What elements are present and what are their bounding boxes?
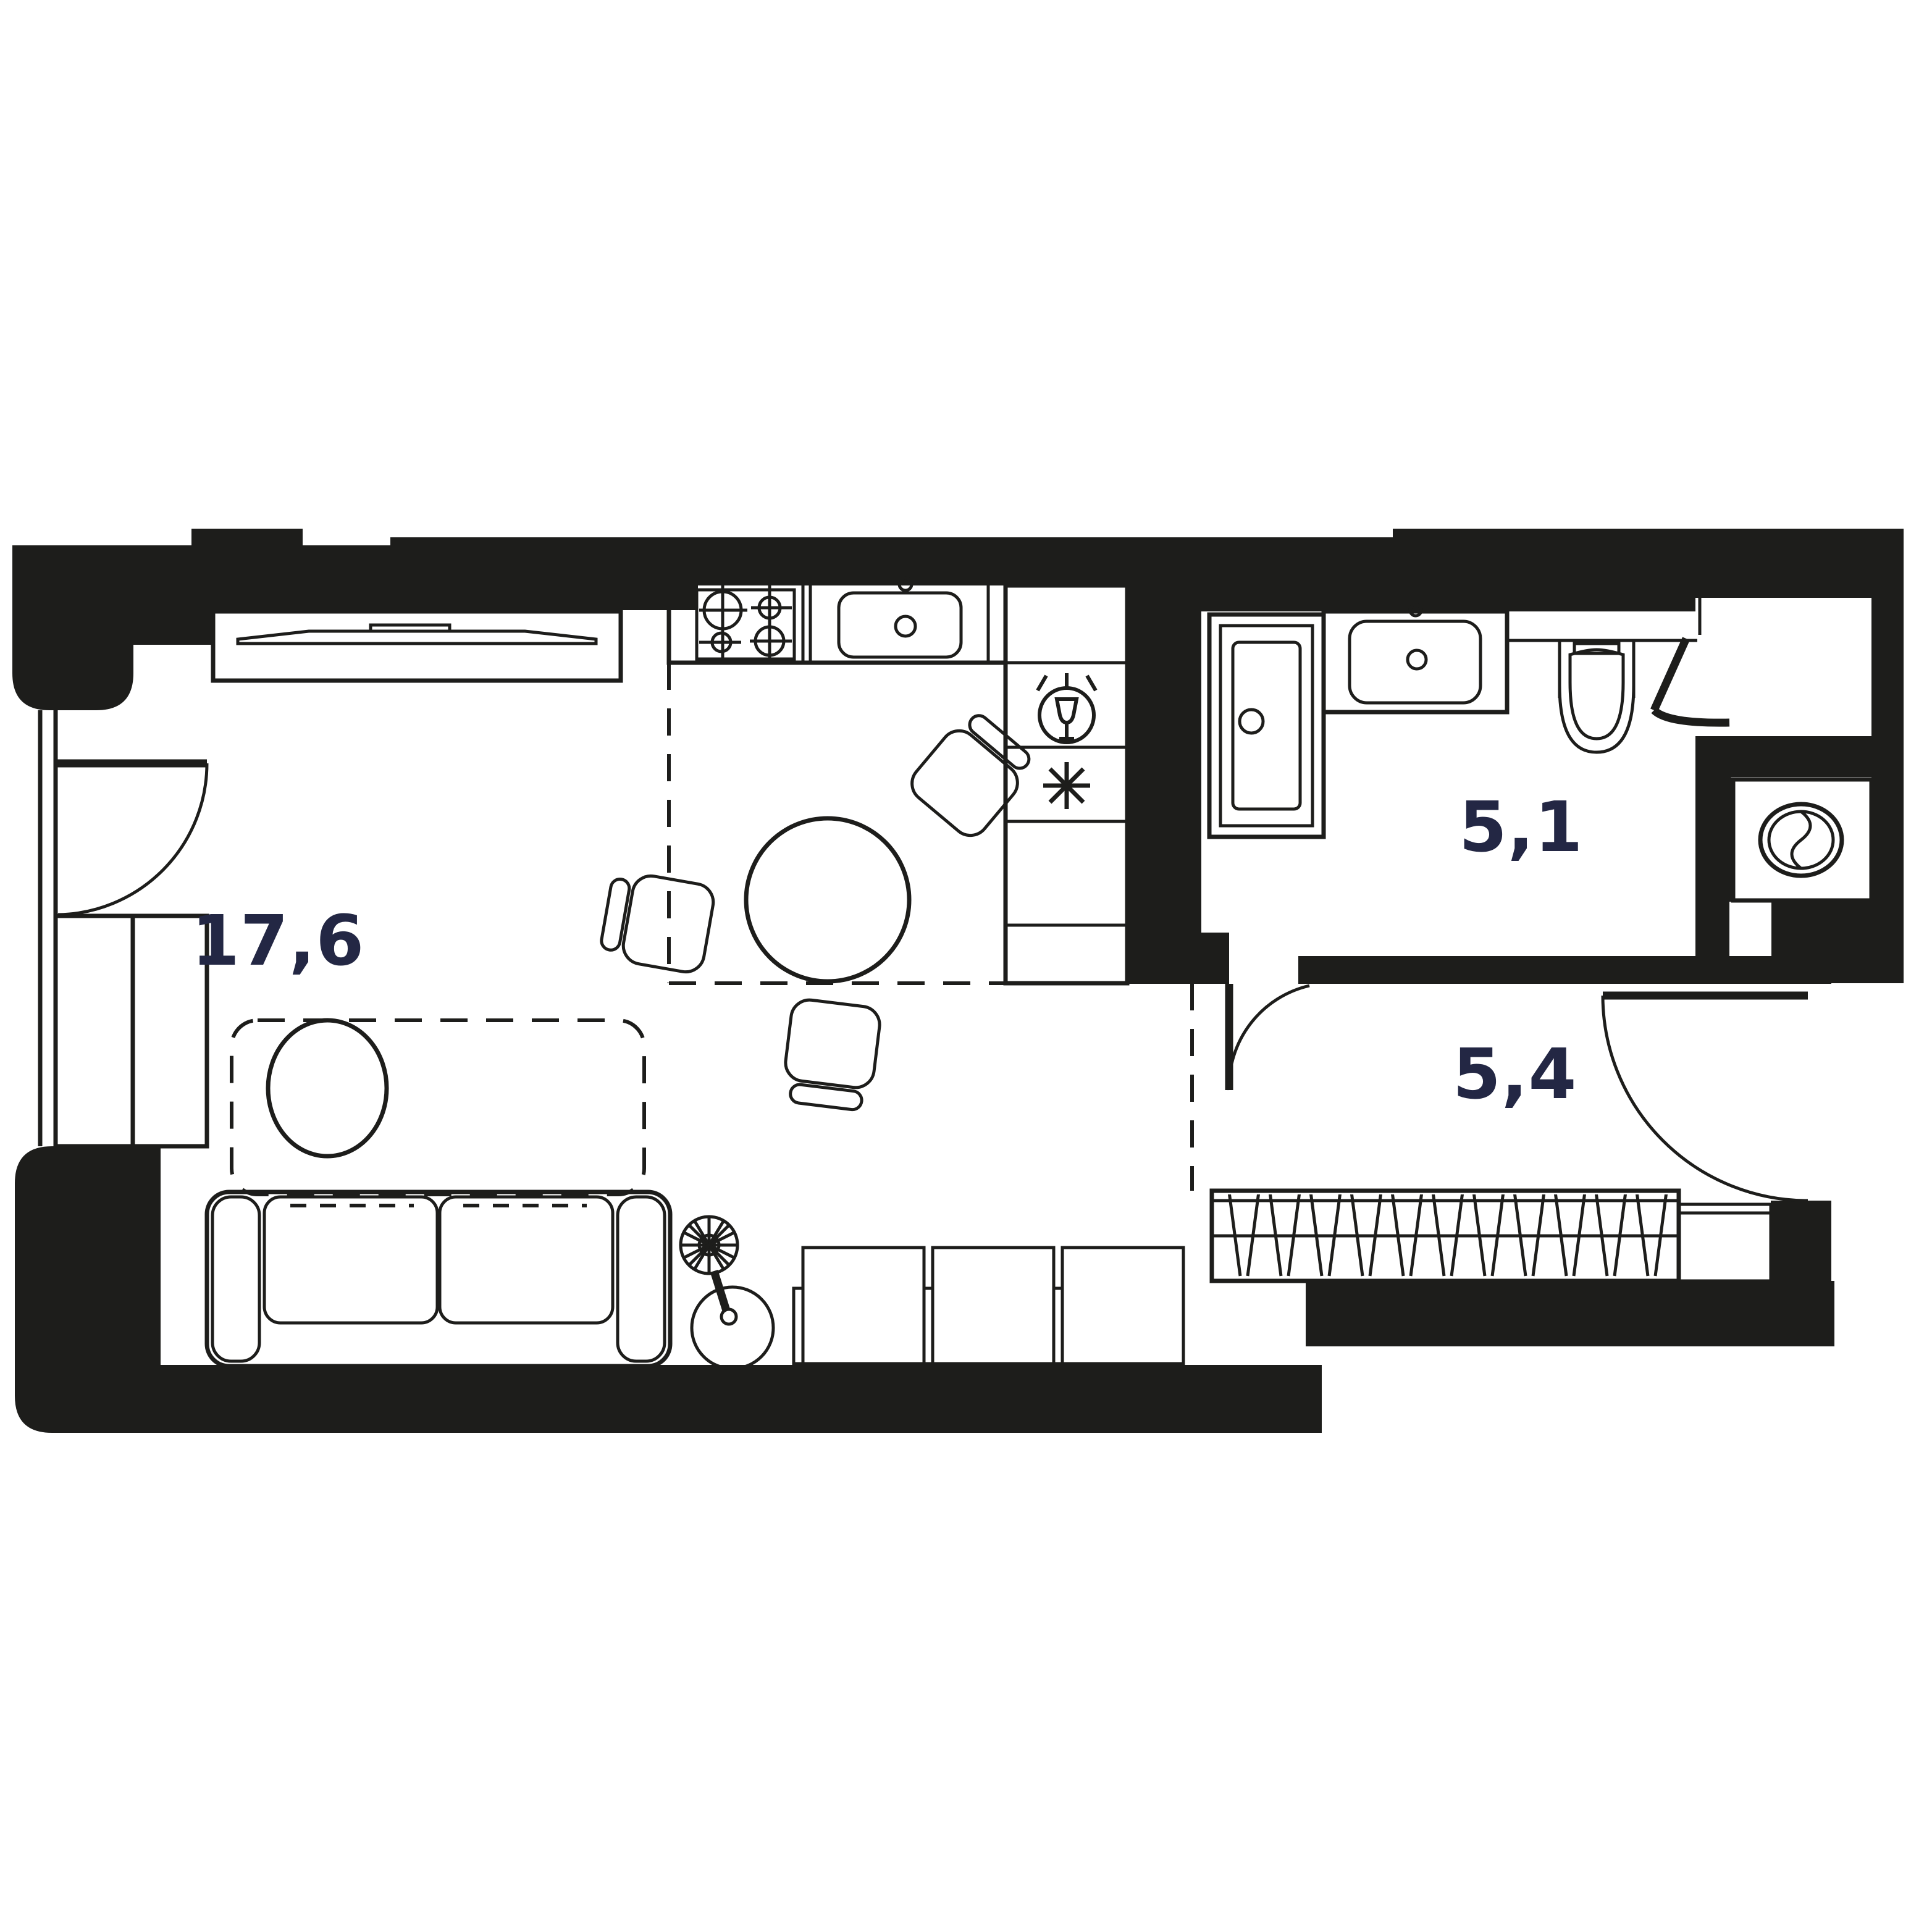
room-label-hallway: 5,4 bbox=[1453, 1034, 1577, 1115]
pouf-icon bbox=[268, 1020, 387, 1156]
toilet-bowl-inner bbox=[1570, 650, 1623, 739]
hall-cabinet-outline bbox=[1679, 1204, 1771, 1281]
hallway bbox=[1192, 983, 1771, 1281]
floor-lamp bbox=[681, 1217, 773, 1369]
washing-machine bbox=[1729, 777, 1871, 902]
wall-strip-washer-left bbox=[1695, 736, 1729, 983]
sink-drain bbox=[896, 616, 915, 636]
rug-zone-dashed bbox=[232, 1020, 644, 1194]
hall-cabinet bbox=[1679, 1204, 1771, 1281]
wall-above-washer bbox=[1729, 736, 1904, 777]
bathtub-basin bbox=[1233, 642, 1300, 809]
tv-console bbox=[213, 611, 621, 681]
dining-chair-s bbox=[781, 998, 881, 1112]
wall-bottom-band-right bbox=[1306, 1281, 1834, 1346]
dining-table bbox=[746, 818, 909, 981]
stove bbox=[697, 585, 794, 659]
living-room bbox=[207, 611, 1183, 1369]
room-label-bathroom: 5,1 bbox=[1459, 787, 1583, 868]
bathtub-drain bbox=[1240, 710, 1263, 733]
washer-drum-swirl bbox=[1792, 812, 1810, 868]
wall-entry-pylon bbox=[1771, 1201, 1831, 1282]
dining-set bbox=[598, 707, 1039, 1112]
vanity-basin bbox=[1350, 621, 1480, 703]
cabinet-3 bbox=[1062, 1248, 1183, 1364]
tv-icon bbox=[238, 631, 596, 644]
kitchen-sink bbox=[839, 578, 988, 663]
wall-divider-kitchen-bath bbox=[1127, 542, 1201, 984]
sofa-seat-left bbox=[264, 1197, 437, 1323]
sofa bbox=[207, 1192, 670, 1366]
wall-bottom-band-left bbox=[154, 1365, 1322, 1433]
window-and-balcony-door bbox=[40, 710, 207, 1146]
closet-door-arc bbox=[1654, 710, 1729, 723]
cabinet-2 bbox=[933, 1248, 1054, 1364]
wall-bottom-left-pylon bbox=[15, 1146, 161, 1433]
entry-door-arc bbox=[1603, 996, 1808, 1201]
kitchen-tall-unit bbox=[1006, 585, 1127, 983]
vanity-drain bbox=[1408, 650, 1426, 669]
wall-top-band bbox=[12, 537, 1201, 610]
bathroom-door-arc bbox=[1229, 986, 1309, 1090]
sofa-seat-right bbox=[440, 1197, 613, 1323]
wall-left-pylon bbox=[12, 610, 213, 710]
floor-plan-canvas: 17,6 5,1 5,4 bbox=[0, 0, 1932, 1930]
dining-chair-w bbox=[598, 869, 716, 975]
sofa-armrest-right bbox=[618, 1197, 665, 1361]
bathtub bbox=[1209, 615, 1324, 837]
floor-plan-page: 17,6 5,1 5,4 bbox=[0, 0, 1932, 1930]
sofa-armrest-left bbox=[212, 1197, 259, 1361]
dishwasher-icon bbox=[1038, 673, 1096, 742]
wall-hall-top bbox=[1298, 956, 1831, 984]
cabinet-stub-2 bbox=[924, 1288, 933, 1364]
closet-door-leaf bbox=[1654, 639, 1686, 710]
sink-basin bbox=[839, 593, 961, 657]
closet-door bbox=[1654, 598, 1729, 723]
low-storage-cabinets bbox=[794, 1248, 1183, 1364]
tv-mount-icon bbox=[371, 625, 450, 631]
wall-top-right-block bbox=[1695, 529, 1904, 598]
bathtub-outer bbox=[1209, 615, 1324, 837]
wardrobe bbox=[1212, 1191, 1679, 1281]
lamp-base-icon bbox=[692, 1287, 773, 1369]
cabinet-stub-3 bbox=[1054, 1288, 1062, 1364]
lamp-stem-joint bbox=[721, 1309, 736, 1324]
toilet bbox=[1507, 640, 1697, 752]
vanity-sink bbox=[1324, 605, 1507, 712]
fridge-snowflake-icon bbox=[1043, 762, 1090, 809]
cabinet-1 bbox=[803, 1248, 924, 1364]
wall-top-band-bath bbox=[1201, 529, 1695, 611]
wall-top-bump-left bbox=[191, 529, 303, 545]
kitchen bbox=[598, 578, 1127, 1112]
balcony-door-swing-arc bbox=[58, 763, 207, 915]
cabinet-stub-1 bbox=[794, 1288, 803, 1364]
wall-bath-bottom-left bbox=[1127, 933, 1229, 984]
wall-right-outer bbox=[1871, 598, 1904, 983]
room-label-living: 17,6 bbox=[191, 901, 364, 981]
